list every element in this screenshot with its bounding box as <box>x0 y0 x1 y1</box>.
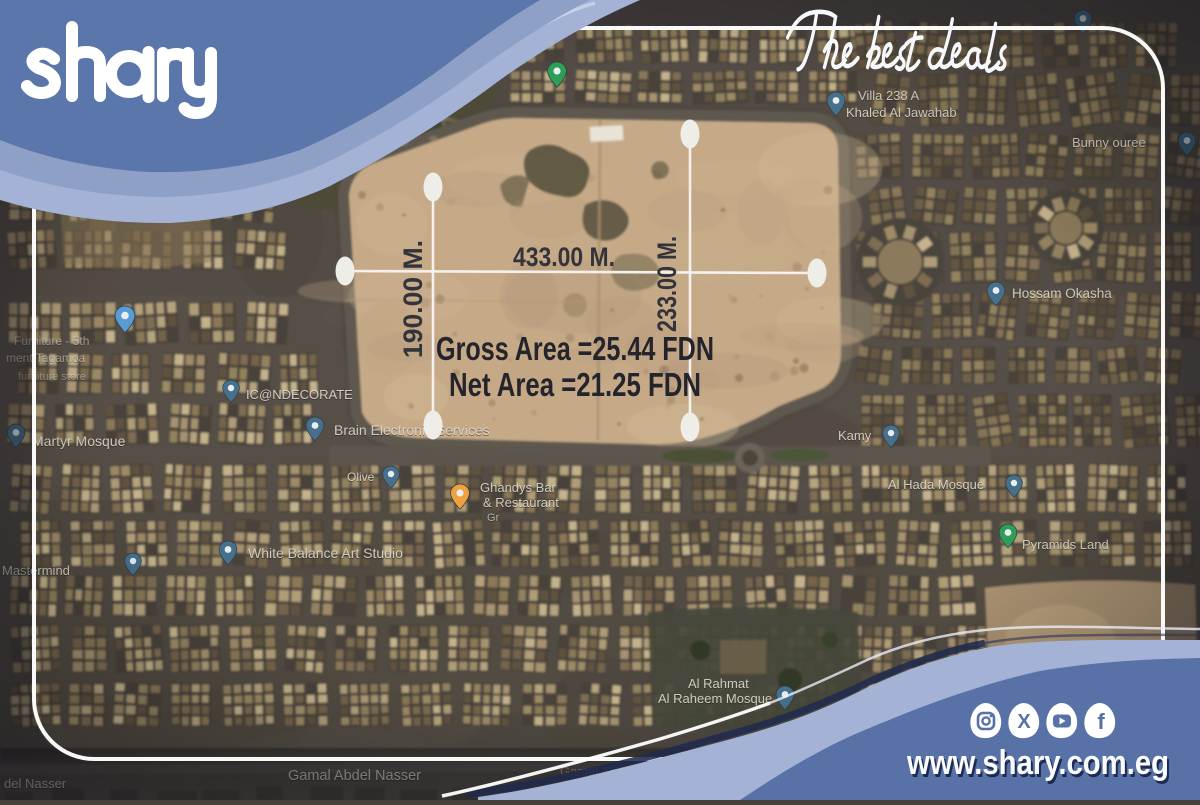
svg-text:X: X <box>1017 711 1031 733</box>
svg-text:Net Area =21.25 FDN: Net Area =21.25 FDN <box>449 366 701 403</box>
svg-text:433.00 M.: 433.00 M. <box>513 242 615 272</box>
svg-text:233.00 M.: 233.00 M. <box>652 236 682 332</box>
svg-text:190.00 M.: 190.00 M. <box>398 240 428 358</box>
svg-text:Gross Area =25.44 FDN: Gross Area =25.44 FDN <box>436 330 714 367</box>
svg-text:www.shary.com.eg: www.shary.com.eg <box>906 744 1169 782</box>
svg-text:f: f <box>1097 709 1105 734</box>
